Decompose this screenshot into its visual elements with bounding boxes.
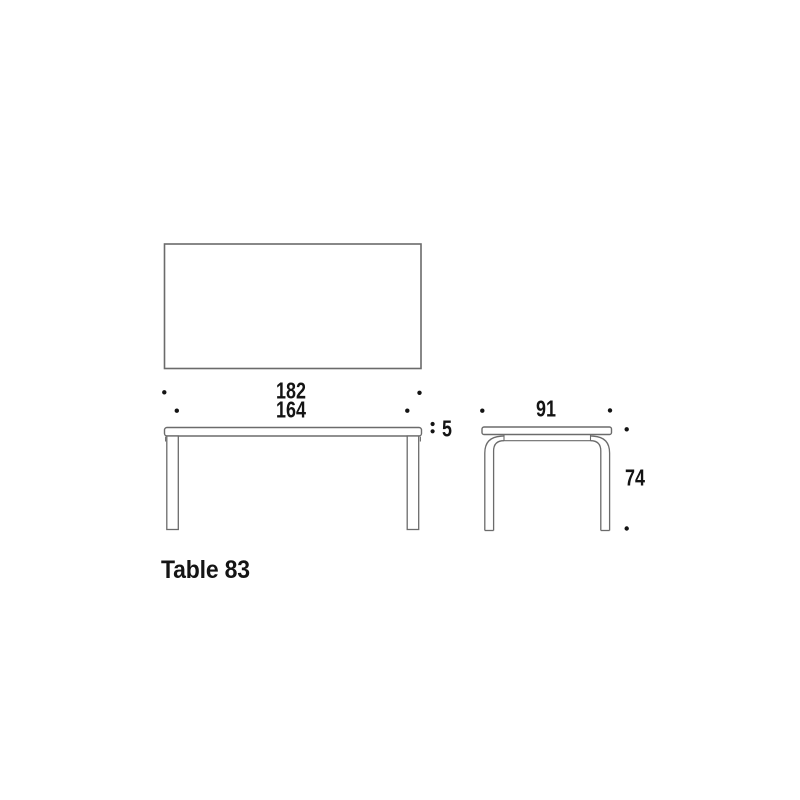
dim-182-right-dot (417, 391, 421, 395)
technical-drawing (0, 0, 800, 800)
front-elevation (165, 428, 422, 530)
front-left-leg (167, 436, 179, 530)
front-tabletop (165, 428, 422, 437)
product-title: Table 83 (161, 556, 250, 585)
dim-164-right-dot (405, 409, 409, 413)
plan-view (165, 244, 422, 369)
dimension-diagram: 182 164 5 91 74 Table 83 (0, 0, 800, 800)
dimension-dots (162, 390, 629, 531)
side-elevation (482, 427, 612, 531)
side-left-leg-inner-edge (494, 441, 504, 531)
side-tabletop (482, 427, 612, 435)
dimension-label-top-thickness: 5 (442, 415, 452, 442)
dim-5-top-dot (431, 422, 435, 426)
dim-5-bottom-dot (431, 429, 435, 433)
side-left-leg-outer-edge (485, 436, 504, 531)
dim-91-left-dot (480, 409, 484, 413)
dimension-label-top-depth: 91 (536, 395, 556, 422)
dimension-label-leg-span: 164 (276, 396, 306, 423)
dim-74-bottom-dot (625, 526, 629, 530)
dim-74-top-dot (625, 427, 629, 431)
tabletop-plan-outline (165, 244, 422, 369)
dimension-label-height: 74 (625, 464, 645, 491)
side-right-leg-inner-edge (591, 441, 601, 531)
dim-182-left-dot (162, 390, 166, 394)
side-right-leg-outer-edge (591, 436, 610, 531)
dim-91-right-dot (608, 408, 612, 412)
front-right-leg (407, 436, 419, 530)
dim-164-left-dot (175, 409, 179, 413)
